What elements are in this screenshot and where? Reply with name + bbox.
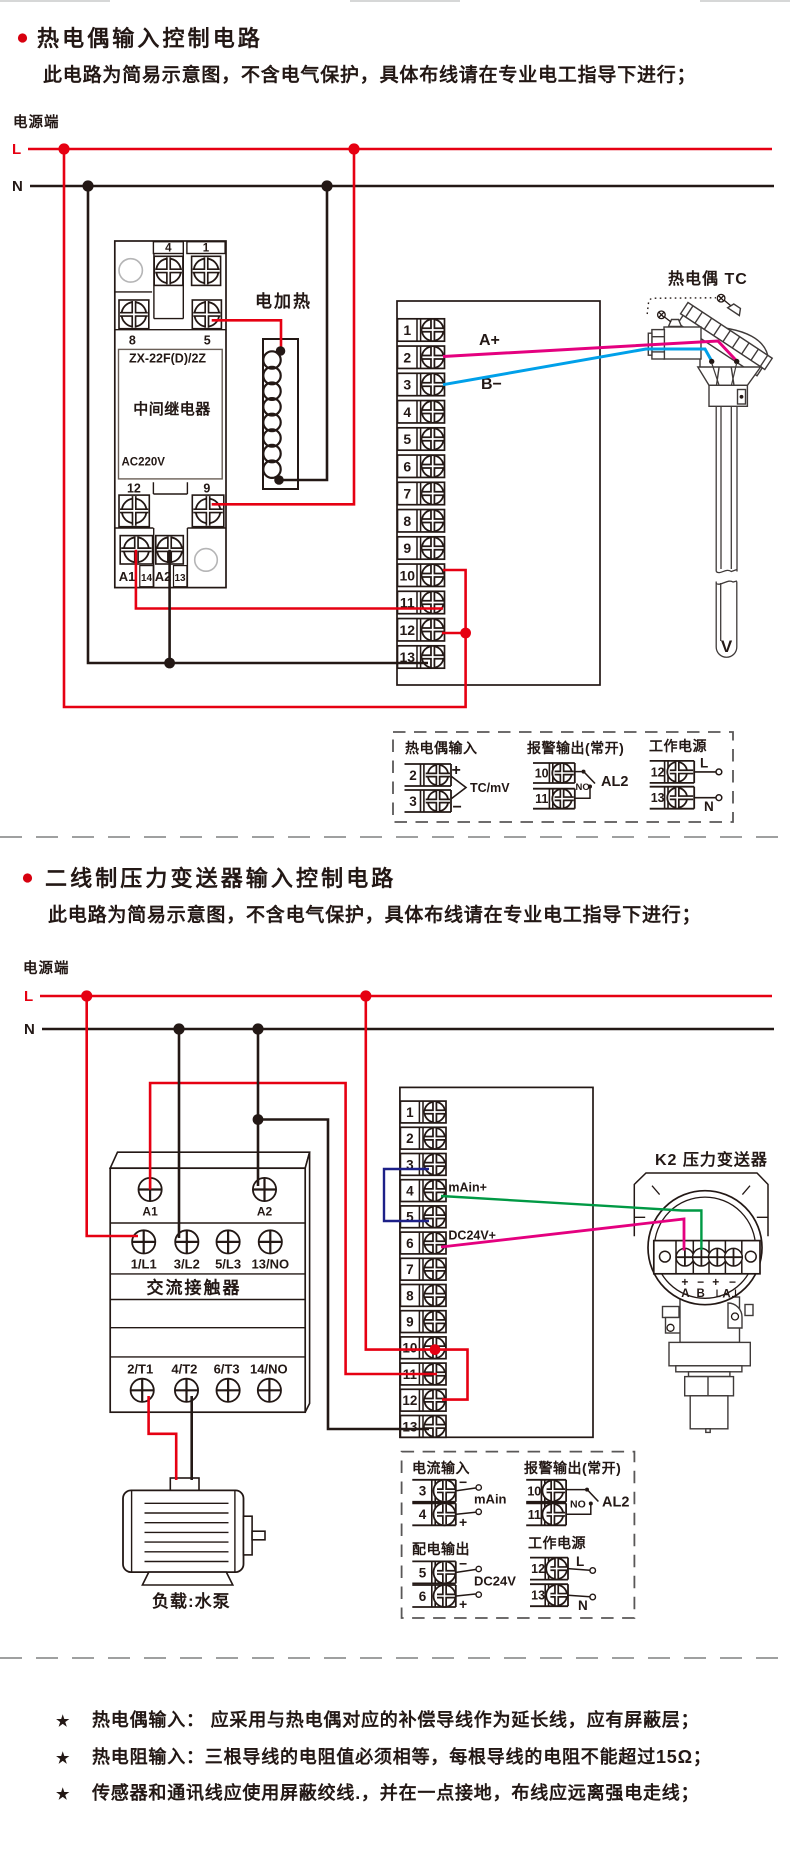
svg-text:10: 10	[399, 567, 415, 583]
svg-text:电源端: 电源端	[13, 113, 60, 131]
svg-text:8: 8	[406, 1288, 414, 1303]
svg-text:−: −	[453, 799, 462, 816]
svg-text:热电偶输入控制电路: 热电偶输入控制电路	[37, 26, 263, 51]
svg-text:L: L	[24, 988, 33, 1005]
svg-text:3: 3	[403, 377, 411, 393]
svg-text:10: 10	[402, 1341, 417, 1356]
svg-text:+: +	[712, 1275, 719, 1289]
svg-text:−: −	[459, 1556, 467, 1572]
svg-text:8: 8	[129, 334, 136, 348]
svg-text:−: −	[729, 1275, 736, 1289]
svg-text:DC24V: DC24V	[474, 1574, 516, 1589]
svg-text:12: 12	[402, 1393, 417, 1408]
svg-text:9: 9	[406, 1314, 414, 1329]
svg-text:A+: A+	[479, 332, 500, 349]
svg-text:L: L	[576, 1554, 584, 1569]
svg-text:2: 2	[406, 1131, 414, 1146]
svg-text:A1: A1	[119, 569, 136, 584]
svg-text:6: 6	[403, 458, 411, 474]
svg-text:1/L1: 1/L1	[131, 1257, 157, 1272]
svg-text:A1: A1	[142, 1205, 158, 1219]
svg-text:4: 4	[419, 1507, 427, 1522]
svg-text:AL2: AL2	[602, 1495, 629, 1511]
svg-text:1: 1	[403, 322, 411, 338]
svg-text:+: +	[459, 1596, 467, 1612]
svg-text:N: N	[578, 1598, 588, 1613]
svg-text:12: 12	[399, 622, 415, 638]
svg-text:4: 4	[406, 1183, 414, 1198]
svg-text:13: 13	[402, 1419, 418, 1434]
svg-text:报警输出(常开): 报警输出(常开)	[524, 1460, 621, 1476]
svg-text:+: +	[452, 762, 461, 779]
svg-text:11: 11	[528, 1508, 541, 1522]
svg-text:A2: A2	[257, 1205, 273, 1219]
svg-text:NO: NO	[576, 782, 590, 793]
svg-text:2: 2	[409, 768, 417, 783]
svg-text:N: N	[704, 799, 714, 814]
svg-text:+: +	[681, 1275, 688, 1289]
svg-text:热电偶输入： 应采用与热电偶对应的补偿导线作为延长线，应有: 热电偶输入： 应采用与热电偶对应的补偿导线作为延长线，应有屏蔽层；	[92, 1709, 699, 1730]
svg-text:10: 10	[535, 767, 549, 781]
svg-text:4: 4	[165, 243, 172, 255]
svg-text:6/T3: 6/T3	[214, 1362, 240, 1377]
svg-text:NO: NO	[570, 1499, 586, 1511]
svg-text:K2 压力变送器: K2 压力变送器	[655, 1150, 768, 1169]
svg-text:+: +	[459, 1514, 467, 1530]
svg-text:8: 8	[403, 513, 411, 529]
svg-text:4: 4	[403, 404, 411, 420]
svg-text:V: V	[721, 637, 733, 656]
svg-text:热电阻输入：三根导线的电阻值必须相等，每根导线的电阻不能超过: 热电阻输入：三根导线的电阻值必须相等，每根导线的电阻不能超过15Ω；	[92, 1746, 712, 1767]
svg-text:7: 7	[403, 486, 411, 502]
svg-text:5: 5	[419, 1565, 427, 1580]
svg-text:二线制压力变送器输入控制电路: 二线制压力变送器输入控制电路	[45, 866, 396, 891]
svg-text:ZX-22F(D)/2Z: ZX-22F(D)/2Z	[129, 352, 206, 366]
svg-text:L: L	[700, 756, 708, 771]
svg-text:9: 9	[403, 540, 411, 556]
svg-text:AL2: AL2	[601, 774, 628, 790]
svg-text:★: ★	[56, 1786, 70, 1803]
svg-text:热电偶 TC: 热电偶 TC	[668, 269, 748, 288]
svg-text:电加热: 电加热	[255, 291, 312, 311]
svg-text:热电偶输入: 热电偶输入	[405, 740, 478, 756]
svg-text:N: N	[12, 178, 23, 195]
svg-text:5: 5	[406, 1210, 414, 1225]
svg-text:7: 7	[406, 1262, 414, 1277]
svg-text:负载:水泵: 负载:水泵	[152, 1591, 231, 1611]
svg-text:此电路为简易示意图，不含电气保护，具体布线请在专业电工指导下: 此电路为简易示意图，不含电气保护，具体布线请在专业电工指导下进行；	[48, 903, 701, 926]
svg-text:13/NO: 13/NO	[252, 1257, 290, 1272]
svg-text:12: 12	[651, 765, 665, 779]
svg-text:AC220V: AC220V	[122, 457, 166, 469]
svg-text:TC/mV: TC/mV	[470, 781, 510, 795]
svg-text:5: 5	[403, 431, 411, 447]
svg-text:电源端: 电源端	[23, 959, 70, 977]
svg-text:6: 6	[406, 1236, 414, 1251]
svg-text:mAin+: mAin+	[448, 1181, 487, 1195]
svg-text:工作电源: 工作电源	[649, 738, 707, 754]
svg-text:A: A	[681, 1288, 689, 1300]
svg-text:1: 1	[203, 243, 210, 255]
svg-text:B: B	[696, 1288, 704, 1300]
svg-text:3: 3	[419, 1484, 427, 1499]
svg-text:12: 12	[531, 1562, 545, 1576]
svg-text:工作电源: 工作电源	[528, 1535, 586, 1551]
svg-text:6: 6	[419, 1589, 427, 1604]
svg-text:L: L	[12, 141, 21, 158]
svg-text:★: ★	[56, 1713, 70, 1730]
svg-text:A: A	[722, 1289, 730, 1301]
svg-text:交流接触器: 交流接触器	[147, 1278, 242, 1298]
svg-text:3: 3	[409, 794, 417, 809]
svg-text:−: −	[697, 1275, 704, 1289]
svg-text:9: 9	[203, 482, 210, 496]
svg-text:3/L2: 3/L2	[174, 1257, 200, 1272]
svg-text:13: 13	[174, 573, 186, 584]
svg-text:中间继电器: 中间继电器	[133, 400, 211, 418]
svg-text:10: 10	[527, 1484, 541, 1498]
svg-text:此电路为简易示意图，不含电气保护，具体布线请在专业电工指导下: 此电路为简易示意图，不含电气保护，具体布线请在专业电工指导下进行；	[43, 63, 696, 86]
svg-text:12: 12	[127, 482, 141, 496]
svg-text:13: 13	[531, 1589, 545, 1603]
svg-text:11: 11	[535, 792, 548, 806]
svg-text:★: ★	[56, 1750, 70, 1767]
svg-text:N: N	[24, 1021, 35, 1038]
svg-text:2/T1: 2/T1	[127, 1362, 153, 1377]
svg-text:1: 1	[406, 1105, 414, 1120]
svg-text:14: 14	[141, 573, 153, 584]
svg-text:14/NO: 14/NO	[250, 1362, 288, 1377]
svg-text:5/L3: 5/L3	[215, 1257, 241, 1272]
svg-text:2: 2	[403, 349, 411, 365]
svg-text:mAin: mAin	[474, 1492, 507, 1507]
svg-text:4/T2: 4/T2	[171, 1362, 197, 1377]
svg-text:传感器和通讯线应使用屏蔽绞线.，并在一点接地，布线应远离强电: 传感器和通讯线应使用屏蔽绞线.，并在一点接地，布线应远离强电走线；	[91, 1782, 699, 1803]
svg-text:报警输出(常开): 报警输出(常开)	[527, 740, 624, 756]
svg-text:−: −	[459, 1474, 467, 1490]
svg-text:5: 5	[204, 334, 211, 348]
svg-text:13: 13	[651, 791, 665, 805]
